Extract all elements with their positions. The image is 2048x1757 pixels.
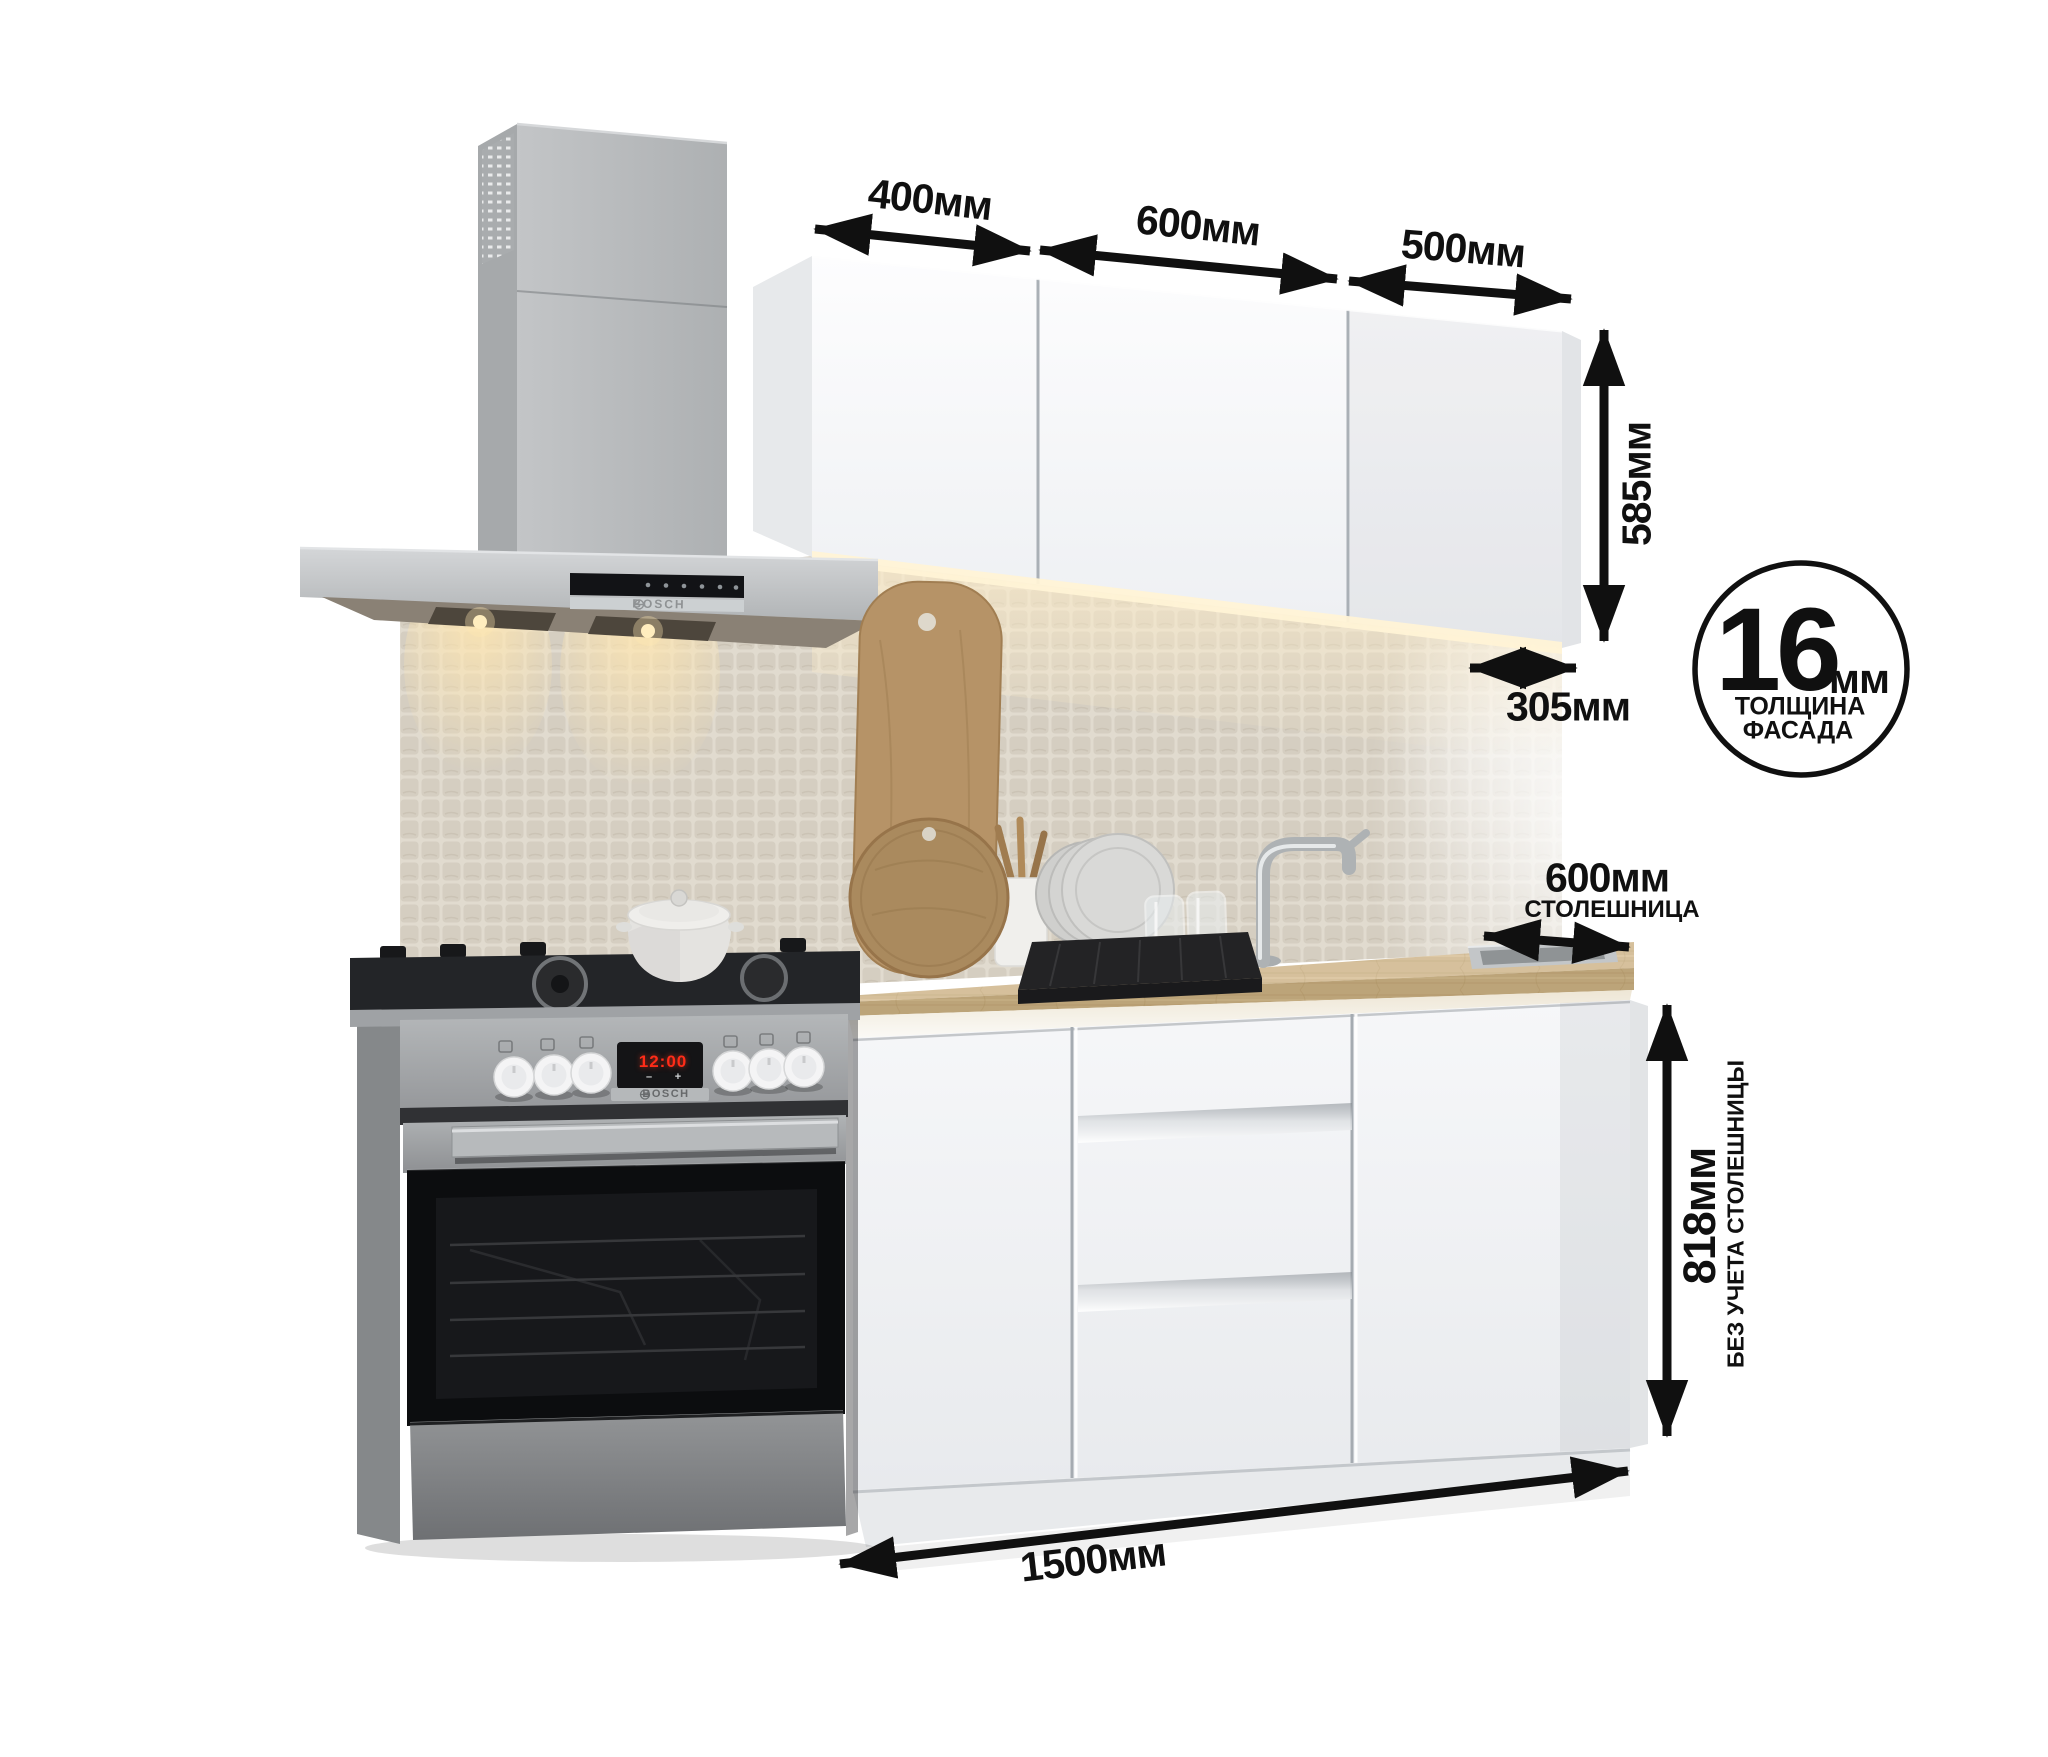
stove [350,890,875,1562]
round-cutting-board [850,819,1008,977]
facade-thickness-badge [1695,563,1907,775]
stove-display [617,1042,703,1089]
upper-cabinet-right-side [1562,331,1581,648]
stove-knob [534,1055,574,1100]
bowl-lid-knob [671,890,687,906]
stove-knob [749,1049,789,1094]
stove-knob [784,1047,824,1092]
hood-control-strip [570,573,744,598]
stove-brand-strip [611,1088,709,1101]
kitchen-product-image: 400мм 600мм 500мм 585мм 305мм 600мм СТОЛ… [0,0,2048,1757]
base-right-side [1630,1000,1648,1448]
hood-chimney [478,124,727,560]
stove-knob [494,1057,534,1102]
burner-ring-right [742,956,786,1000]
oven-window [436,1189,817,1399]
bowl-handle-left [616,922,632,932]
stove-left-side [357,962,400,1544]
dish-rack [1018,932,1262,1004]
bowl-handle-right [728,922,744,932]
dim-arrow-500 [1349,281,1571,299]
stove-lower-panel [410,1410,846,1540]
kitchen-render [0,0,2048,1757]
dim-arrow-600-upper [1040,250,1337,279]
stove-knob [571,1053,611,1098]
hood-vent-grille [482,133,514,264]
upper-cabinet-left-side [753,256,812,557]
base-cabinets-front [853,1000,1630,1490]
hood-chimney-front [517,124,727,560]
hood-canopy [300,548,878,648]
dim-arrow-400 [815,229,1030,251]
stove-knob [713,1051,753,1096]
